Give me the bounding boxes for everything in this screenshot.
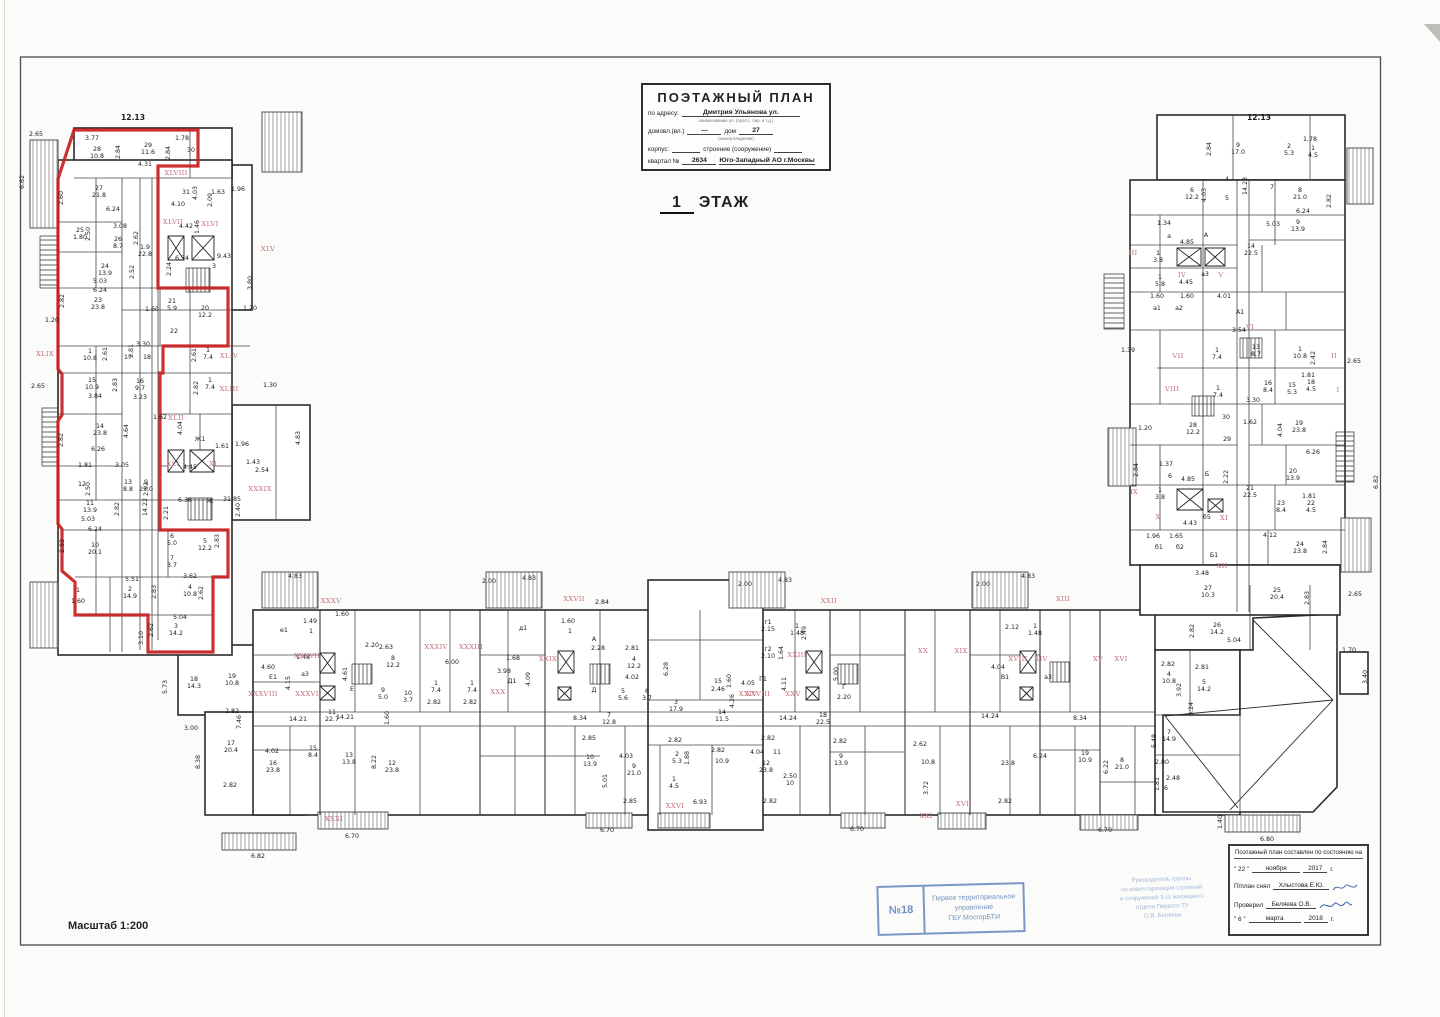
svg-text:19: 19 bbox=[1081, 750, 1089, 757]
svg-text:1.60: 1.60 bbox=[71, 598, 85, 605]
svg-text:IV: IV bbox=[1178, 271, 1187, 279]
svg-text:13: 13 bbox=[345, 752, 353, 759]
ownership-note: (номер владения) bbox=[648, 136, 824, 141]
svg-text:2.61: 2.61 bbox=[191, 348, 198, 362]
svg-text:XLVII: XLVII bbox=[163, 218, 183, 226]
ownership-value: — bbox=[687, 127, 721, 135]
svg-text:XXIII: XXIII bbox=[787, 651, 806, 659]
svg-text:4.02: 4.02 bbox=[265, 748, 279, 755]
svg-text:4.11: 4.11 bbox=[781, 677, 788, 691]
svg-text:4.83: 4.83 bbox=[522, 575, 536, 582]
svg-text:6.93: 6.93 bbox=[693, 799, 707, 806]
svg-text:8: 8 bbox=[1298, 187, 1302, 194]
svg-text:XXVII: XXVII bbox=[563, 595, 584, 603]
svg-text:1: 1 bbox=[434, 680, 438, 687]
checker-name: Беляева О.В. bbox=[1266, 901, 1316, 909]
svg-text:2.81: 2.81 bbox=[625, 645, 639, 652]
svg-text:5.3: 5.3 bbox=[672, 758, 682, 765]
svg-text:XXV: XXV bbox=[785, 690, 801, 698]
svg-text:1.20: 1.20 bbox=[243, 305, 257, 312]
svg-text:1: 1 bbox=[88, 348, 92, 355]
svg-text:5.03: 5.03 bbox=[93, 278, 107, 285]
svg-text:17.0: 17.0 bbox=[1231, 149, 1245, 156]
title-block: ПОЭТАЖНЫЙ ПЛАН по адресу: Дмитрия Ульяно… bbox=[641, 83, 831, 171]
svg-text:8.38: 8.38 bbox=[195, 755, 202, 769]
svg-text:14: 14 bbox=[718, 709, 726, 716]
svg-text:4.5: 4.5 bbox=[1308, 152, 1318, 159]
svg-text:В1: В1 bbox=[1001, 674, 1009, 681]
svg-text:2.82: 2.82 bbox=[225, 708, 239, 715]
svg-text:10.8: 10.8 bbox=[225, 680, 239, 687]
svg-text:6.24: 6.24 bbox=[106, 206, 120, 213]
svg-text:4.09: 4.09 bbox=[525, 672, 532, 686]
svg-text:б2: б2 bbox=[1176, 543, 1184, 551]
svg-text:4: 4 bbox=[1225, 176, 1229, 183]
svg-text:III: III bbox=[1129, 249, 1138, 257]
svg-text:9: 9 bbox=[144, 479, 148, 486]
svg-text:2.65: 2.65 bbox=[29, 131, 43, 138]
svg-text:15: 15 bbox=[1288, 382, 1296, 389]
svg-text:Е: Е bbox=[350, 686, 354, 693]
svg-text:1.40: 1.40 bbox=[1217, 815, 1224, 829]
svg-text:11.6: 11.6 bbox=[141, 149, 155, 156]
svg-text:4.83: 4.83 bbox=[295, 431, 302, 445]
floor-title: 1ЭТАЖ bbox=[660, 194, 749, 214]
svg-text:13.9: 13.9 bbox=[83, 507, 97, 514]
svg-text:27: 27 bbox=[95, 185, 103, 192]
svg-text:9.43: 9.43 bbox=[217, 253, 231, 260]
svg-text:2.83: 2.83 bbox=[112, 378, 119, 392]
svg-text:6.24: 6.24 bbox=[1033, 753, 1047, 760]
svg-text:4.43: 4.43 bbox=[1183, 520, 1197, 527]
svg-text:6.28: 6.28 bbox=[663, 662, 670, 676]
svg-text:3: 3 bbox=[674, 699, 678, 706]
svg-text:1.81: 1.81 bbox=[1301, 372, 1315, 379]
svg-text:7: 7 bbox=[607, 712, 611, 719]
svg-text:8.4: 8.4 bbox=[1276, 507, 1286, 514]
svg-text:2.09: 2.09 bbox=[207, 193, 214, 207]
svg-text:3.98: 3.98 bbox=[497, 668, 511, 675]
svg-text:5: 5 bbox=[1225, 195, 1229, 202]
svg-text:2: 2 bbox=[675, 751, 679, 758]
svg-text:5: 5 bbox=[203, 538, 207, 545]
svg-text:12.2: 12.2 bbox=[198, 545, 212, 552]
stroenie-value bbox=[774, 145, 802, 153]
svg-text:XXXIII: XXXIII bbox=[459, 643, 483, 651]
svg-text:7.4: 7.4 bbox=[1213, 392, 1223, 399]
survey-block: Поэтажный план составлен по состоянию на… bbox=[1228, 844, 1369, 936]
svg-text:2.20: 2.20 bbox=[365, 642, 379, 649]
svg-text:20.1: 20.1 bbox=[88, 549, 102, 556]
svg-text:1.81: 1.81 bbox=[1154, 777, 1161, 791]
svg-text:10.8: 10.8 bbox=[83, 355, 97, 362]
svg-text:8.34: 8.34 bbox=[1073, 715, 1087, 722]
svg-text:6.00: 6.00 bbox=[445, 659, 459, 666]
svg-text:12.2: 12.2 bbox=[1185, 194, 1199, 201]
svg-text:9.7: 9.7 bbox=[135, 385, 145, 392]
svg-text:3.72: 3.72 bbox=[923, 781, 930, 795]
svg-text:23.8: 23.8 bbox=[1292, 427, 1306, 434]
svg-text:XLIII: XLIII bbox=[220, 385, 239, 393]
svg-text:2.82: 2.82 bbox=[1189, 624, 1196, 638]
svg-text:5.51: 5.51 bbox=[125, 576, 139, 583]
svg-text:Ж: Ж bbox=[207, 498, 214, 505]
svg-text:6.24: 6.24 bbox=[1296, 208, 1310, 215]
svg-text:22.7: 22.7 bbox=[325, 716, 339, 723]
survey-date1-suffix: г. bbox=[1330, 866, 1333, 873]
svg-text:б1: б1 bbox=[1155, 543, 1163, 551]
survey-header: Поэтажный план составлен по состоянию на bbox=[1234, 849, 1363, 859]
svg-text:1.9: 1.9 bbox=[140, 244, 150, 251]
svg-text:2.84: 2.84 bbox=[595, 599, 609, 606]
svg-text:6: 6 bbox=[1190, 187, 1194, 194]
svg-text:XL: XL bbox=[209, 460, 219, 468]
svg-text:12.2: 12.2 bbox=[1186, 429, 1200, 436]
scanned-floor-plan-page: 12.133.772810.82.842911.64.311.78302.842… bbox=[0, 0, 1440, 1017]
kvartal-label: квартал № bbox=[648, 158, 679, 165]
svg-text:14.23: 14.23 bbox=[1242, 177, 1249, 195]
svg-text:10.8: 10.8 bbox=[921, 759, 935, 766]
svg-text:15: 15 bbox=[309, 745, 317, 752]
svg-text:23: 23 bbox=[94, 297, 102, 304]
svg-text:17.9: 17.9 bbox=[669, 706, 683, 713]
svg-text:15: 15 bbox=[714, 678, 722, 685]
svg-text:28: 28 bbox=[1189, 422, 1197, 429]
svg-text:7.46: 7.46 bbox=[236, 715, 243, 729]
svg-text:3.7: 3.7 bbox=[642, 695, 652, 702]
svg-text:а3: а3 bbox=[1044, 674, 1052, 681]
svg-text:XXIV: XXIV bbox=[739, 690, 758, 698]
svg-text:4.5: 4.5 bbox=[1306, 507, 1316, 514]
svg-text:V: V bbox=[1217, 271, 1224, 279]
svg-text:23: 23 bbox=[1277, 500, 1285, 507]
svg-text:2.81: 2.81 bbox=[1195, 664, 1209, 671]
svg-text:X: X bbox=[1155, 513, 1160, 521]
svg-text:2.62: 2.62 bbox=[133, 231, 140, 245]
svg-text:4.31: 4.31 bbox=[138, 161, 152, 168]
korpus-label: корпус: bbox=[648, 146, 669, 153]
svg-text:1: 1 bbox=[1311, 145, 1315, 152]
svg-text:3.77: 3.77 bbox=[85, 135, 99, 142]
svg-text:XI: XI bbox=[1220, 514, 1228, 522]
svg-text:14: 14 bbox=[1247, 243, 1255, 250]
svg-text:5.9: 5.9 bbox=[167, 305, 177, 312]
svg-text:1: 1 bbox=[1158, 487, 1162, 494]
svg-text:10.9: 10.9 bbox=[85, 384, 99, 391]
svg-text:2.50: 2.50 bbox=[85, 482, 92, 496]
svg-text:2.54: 2.54 bbox=[255, 467, 269, 474]
svg-text:14.24: 14.24 bbox=[779, 715, 797, 722]
svg-text:4: 4 bbox=[188, 584, 192, 591]
svg-text:2.82: 2.82 bbox=[763, 798, 777, 805]
svg-text:5.48: 5.48 bbox=[1151, 734, 1158, 748]
svg-text:14.9: 14.9 bbox=[1162, 736, 1176, 743]
svg-text:13.9: 13.9 bbox=[1291, 226, 1305, 233]
svg-text:1: 1 bbox=[76, 587, 80, 594]
svg-text:18: 18 bbox=[1307, 379, 1315, 386]
svg-text:10.3: 10.3 bbox=[1201, 592, 1215, 599]
svg-text:22.5: 22.5 bbox=[1244, 250, 1258, 257]
svg-text:31.85: 31.85 bbox=[223, 496, 241, 503]
svg-text:6: 6 bbox=[1168, 473, 1172, 480]
svg-text:6.82: 6.82 bbox=[19, 175, 26, 189]
svg-text:1: 1 bbox=[1215, 347, 1219, 354]
inspector-stamp: Руководитель группы по инвентаризации ст… bbox=[1085, 873, 1238, 923]
svg-text:6.82: 6.82 bbox=[251, 853, 265, 860]
svg-text:1.61: 1.61 bbox=[215, 443, 229, 450]
svg-text:XLV: XLV bbox=[261, 245, 276, 253]
svg-text:е1: е1 bbox=[280, 627, 288, 634]
svg-text:5: 5 bbox=[621, 688, 625, 695]
svg-text:Е1: Е1 bbox=[269, 674, 277, 681]
svg-text:12: 12 bbox=[388, 760, 396, 767]
svg-text:2.85: 2.85 bbox=[623, 798, 637, 805]
svg-text:1.78: 1.78 bbox=[1303, 136, 1317, 143]
svg-text:4.03: 4.03 bbox=[619, 753, 633, 760]
svg-text:а1: а1 bbox=[1153, 305, 1161, 312]
svg-text:3: 3 bbox=[212, 263, 216, 270]
svg-text:1.48: 1.48 bbox=[1028, 630, 1042, 637]
svg-text:4.03: 4.03 bbox=[1201, 188, 1208, 202]
svg-text:1.49: 1.49 bbox=[303, 618, 317, 625]
svg-text:4.01: 4.01 bbox=[1217, 293, 1231, 300]
svg-text:Ж1: Ж1 bbox=[195, 436, 206, 443]
svg-text:15: 15 bbox=[88, 377, 96, 384]
svg-text:7.4: 7.4 bbox=[1212, 354, 1222, 361]
svg-text:4.04: 4.04 bbox=[177, 421, 184, 435]
svg-text:4.02: 4.02 bbox=[625, 674, 639, 681]
svg-text:10.8: 10.8 bbox=[1293, 353, 1307, 360]
svg-text:2.50: 2.50 bbox=[85, 227, 92, 241]
svg-text:28: 28 bbox=[93, 146, 101, 153]
svg-text:14.22: 14.22 bbox=[142, 498, 149, 516]
svg-text:22: 22 bbox=[170, 328, 178, 335]
svg-text:23.8: 23.8 bbox=[759, 767, 773, 774]
svg-text:1: 1 bbox=[309, 628, 313, 635]
svg-text:4.15: 4.15 bbox=[285, 676, 292, 690]
svg-text:1.34: 1.34 bbox=[1157, 220, 1171, 227]
survey-date2-suffix: г. bbox=[1331, 916, 1334, 923]
svg-text:6.82: 6.82 bbox=[1373, 475, 1380, 489]
svg-text:9: 9 bbox=[1296, 219, 1300, 226]
svg-text:2.82: 2.82 bbox=[223, 782, 237, 789]
svg-text:4.04: 4.04 bbox=[1277, 423, 1284, 437]
survey-date2-month: марта bbox=[1249, 915, 1301, 923]
svg-text:3.10: 3.10 bbox=[138, 631, 145, 645]
svg-text:4.64: 4.64 bbox=[123, 424, 130, 438]
svg-text:14.24: 14.24 bbox=[981, 713, 999, 720]
svg-text:2.61: 2.61 bbox=[102, 347, 109, 361]
svg-text:2.15: 2.15 bbox=[761, 626, 775, 633]
svg-text:1: 1 bbox=[208, 377, 212, 384]
title-block-heading: ПОЭТАЖНЫЙ ПЛАН bbox=[648, 90, 824, 105]
svg-text:XLI: XLI bbox=[167, 460, 180, 468]
svg-text:2: 2 bbox=[1287, 143, 1291, 150]
svg-text:20: 20 bbox=[201, 305, 209, 312]
svg-text:8: 8 bbox=[391, 655, 395, 662]
svg-text:7: 7 bbox=[170, 555, 174, 562]
svg-text:5.0: 5.0 bbox=[167, 540, 177, 547]
svg-text:12.2: 12.2 bbox=[386, 662, 400, 669]
svg-text:XXXI: XXXI bbox=[325, 815, 343, 823]
svg-text:8.22: 8.22 bbox=[371, 755, 378, 769]
svg-text:8.4: 8.4 bbox=[1263, 387, 1273, 394]
svg-text:4.85: 4.85 bbox=[1181, 476, 1195, 483]
svg-text:10.8: 10.8 bbox=[90, 153, 104, 160]
svg-text:6.26: 6.26 bbox=[1306, 449, 1320, 456]
svg-text:XXIX: XXIX bbox=[539, 655, 557, 663]
svg-text:3.00: 3.00 bbox=[184, 725, 198, 732]
svg-text:4.45: 4.45 bbox=[183, 464, 197, 471]
svg-text:XIX: XIX bbox=[954, 647, 967, 655]
svg-text:10.8: 10.8 bbox=[1162, 678, 1176, 685]
scan-artifact-line bbox=[4, 0, 5, 1017]
svg-text:23.8: 23.8 bbox=[266, 767, 280, 774]
svg-text:2.21: 2.21 bbox=[163, 506, 170, 520]
svg-text:1.62: 1.62 bbox=[153, 414, 167, 421]
svg-text:XXI: XXI bbox=[919, 812, 932, 820]
svg-text:10.9: 10.9 bbox=[715, 758, 729, 765]
svg-text:12: 12 bbox=[762, 760, 770, 767]
svg-text:2.82: 2.82 bbox=[1161, 661, 1175, 668]
ownership-label: домовл.(вл.) bbox=[648, 128, 684, 135]
svg-text:8.8: 8.8 bbox=[123, 486, 133, 493]
svg-text:29: 29 bbox=[1223, 436, 1231, 443]
svg-text:1.96: 1.96 bbox=[231, 186, 245, 193]
svg-text:а2: а2 bbox=[1175, 305, 1183, 312]
svg-text:XIV: XIV bbox=[1034, 655, 1048, 663]
svg-text:2.84: 2.84 bbox=[165, 146, 172, 160]
svg-text:21: 21 bbox=[1246, 485, 1254, 492]
svg-text:9: 9 bbox=[1236, 142, 1240, 149]
svg-text:а: а bbox=[1167, 233, 1171, 240]
svg-text:1: 1 bbox=[672, 776, 676, 783]
svg-text:30: 30 bbox=[1222, 414, 1230, 421]
svg-text:6.70: 6.70 bbox=[1098, 827, 1112, 834]
svg-text:2.12: 2.12 bbox=[1005, 624, 1019, 631]
svg-text:XVII: XVII bbox=[956, 800, 972, 808]
svg-text:4.85: 4.85 bbox=[1180, 239, 1194, 246]
svg-text:7.4: 7.4 bbox=[203, 354, 213, 361]
svg-text:6.26: 6.26 bbox=[91, 446, 105, 453]
svg-text:9: 9 bbox=[381, 687, 385, 694]
svg-text:7.4: 7.4 bbox=[205, 384, 215, 391]
svg-text:1.30: 1.30 bbox=[263, 382, 277, 389]
svg-text:3.7: 3.7 bbox=[403, 697, 413, 704]
scale-label: Масштаб 1:200 bbox=[68, 920, 148, 932]
svg-text:2.65: 2.65 bbox=[1348, 591, 1362, 598]
svg-text:5.03: 5.03 bbox=[81, 516, 95, 523]
svg-text:5.8: 5.8 bbox=[1155, 281, 1165, 288]
svg-text:2.48: 2.48 bbox=[1166, 775, 1180, 782]
svg-text:IX: IX bbox=[1130, 488, 1138, 496]
svg-text:XVIII: XVIII bbox=[1008, 655, 1027, 663]
svg-text:1.70: 1.70 bbox=[1342, 647, 1356, 654]
svg-text:а3: а3 bbox=[301, 671, 309, 678]
svg-text:26: 26 bbox=[114, 236, 122, 243]
svg-text:а3: а3 bbox=[1201, 271, 1209, 278]
svg-text:3.7: 3.7 bbox=[167, 562, 177, 569]
svg-text:11: 11 bbox=[773, 749, 781, 756]
svg-text:3.08: 3.08 bbox=[113, 223, 127, 230]
svg-text:18: 18 bbox=[143, 354, 151, 361]
svg-text:2.00: 2.00 bbox=[976, 581, 990, 588]
svg-text:21.0: 21.0 bbox=[1293, 194, 1307, 201]
district-name: Юго-Западный АО г.Москвы bbox=[719, 157, 814, 165]
svg-text:2.82: 2.82 bbox=[711, 747, 725, 754]
svg-text:31: 31 bbox=[182, 189, 190, 196]
svg-text:I: I bbox=[1337, 386, 1340, 394]
svg-text:26: 26 bbox=[1213, 622, 1221, 629]
svg-text:3.8: 3.8 bbox=[1153, 257, 1163, 264]
svg-text:1.37: 1.37 bbox=[1159, 461, 1173, 468]
svg-text:1.60: 1.60 bbox=[561, 618, 575, 625]
svg-text:XXXVI: XXXVI bbox=[295, 690, 319, 698]
svg-text:1: 1 bbox=[795, 623, 799, 630]
svg-text:8.7: 8.7 bbox=[1251, 351, 1261, 358]
svg-text:10: 10 bbox=[786, 780, 794, 787]
svg-text:10.9: 10.9 bbox=[1078, 757, 1092, 764]
svg-text:1.81: 1.81 bbox=[1302, 493, 1316, 500]
svg-text:3.05: 3.05 bbox=[115, 462, 129, 469]
svg-text:2.82: 2.82 bbox=[668, 737, 682, 744]
svg-text:XLIV: XLIV bbox=[220, 352, 239, 360]
svg-text:20.4: 20.4 bbox=[224, 747, 238, 754]
svg-text:2.50: 2.50 bbox=[783, 773, 797, 780]
svg-text:д1: д1 bbox=[519, 625, 527, 632]
svg-text:2.62: 2.62 bbox=[148, 623, 155, 637]
svg-text:1.60: 1.60 bbox=[1150, 293, 1164, 300]
svg-text:3.80: 3.80 bbox=[247, 276, 254, 290]
svg-text:14.2: 14.2 bbox=[169, 630, 183, 637]
svg-text:VIII: VIII bbox=[1164, 385, 1179, 393]
svg-text:6.70: 6.70 bbox=[600, 827, 614, 834]
svg-text:17: 17 bbox=[227, 740, 235, 747]
svg-text:6.22: 6.22 bbox=[1103, 760, 1110, 774]
svg-text:5.73: 5.73 bbox=[162, 680, 169, 694]
svg-text:2.83: 2.83 bbox=[214, 534, 221, 548]
svg-text:5.3: 5.3 bbox=[1284, 150, 1294, 157]
svg-text:3: 3 bbox=[174, 623, 178, 630]
svg-text:1.46: 1.46 bbox=[194, 220, 201, 234]
svg-text:18: 18 bbox=[819, 712, 827, 719]
svg-text:3.30: 3.30 bbox=[136, 341, 150, 348]
svg-text:4.83: 4.83 bbox=[288, 573, 302, 580]
svg-text:2.10: 2.10 bbox=[761, 653, 775, 660]
svg-text:XXXIV: XXXIV bbox=[424, 643, 448, 651]
svg-text:23.0: 23.0 bbox=[139, 486, 153, 493]
surveyor-name: Хлыстова Е.Ю. bbox=[1273, 882, 1329, 890]
svg-text:4.03: 4.03 bbox=[192, 186, 199, 200]
svg-text:16: 16 bbox=[269, 760, 277, 767]
svg-text:13.9: 13.9 bbox=[834, 760, 848, 767]
svg-text:1.68: 1.68 bbox=[506, 655, 520, 662]
svg-text:1: 1 bbox=[1298, 346, 1302, 353]
svg-text:10.8: 10.8 bbox=[183, 591, 197, 598]
address-note: наименование ул. (просп., пер. и т.д.) bbox=[648, 118, 824, 123]
svg-text:Б: Б bbox=[1205, 471, 1209, 478]
svg-text:11: 11 bbox=[328, 709, 336, 716]
svg-text:13.9: 13.9 bbox=[1286, 475, 1300, 482]
svg-text:4.61: 4.61 bbox=[342, 667, 349, 681]
svg-text:17: 17 bbox=[124, 354, 132, 361]
svg-text:2.49: 2.49 bbox=[801, 626, 808, 640]
svg-text:5.0: 5.0 bbox=[378, 694, 388, 701]
korpus-value bbox=[672, 145, 700, 153]
svg-text:2.62: 2.62 bbox=[198, 586, 205, 600]
svg-text:2.82: 2.82 bbox=[761, 735, 775, 742]
svg-text:8: 8 bbox=[1120, 757, 1124, 764]
